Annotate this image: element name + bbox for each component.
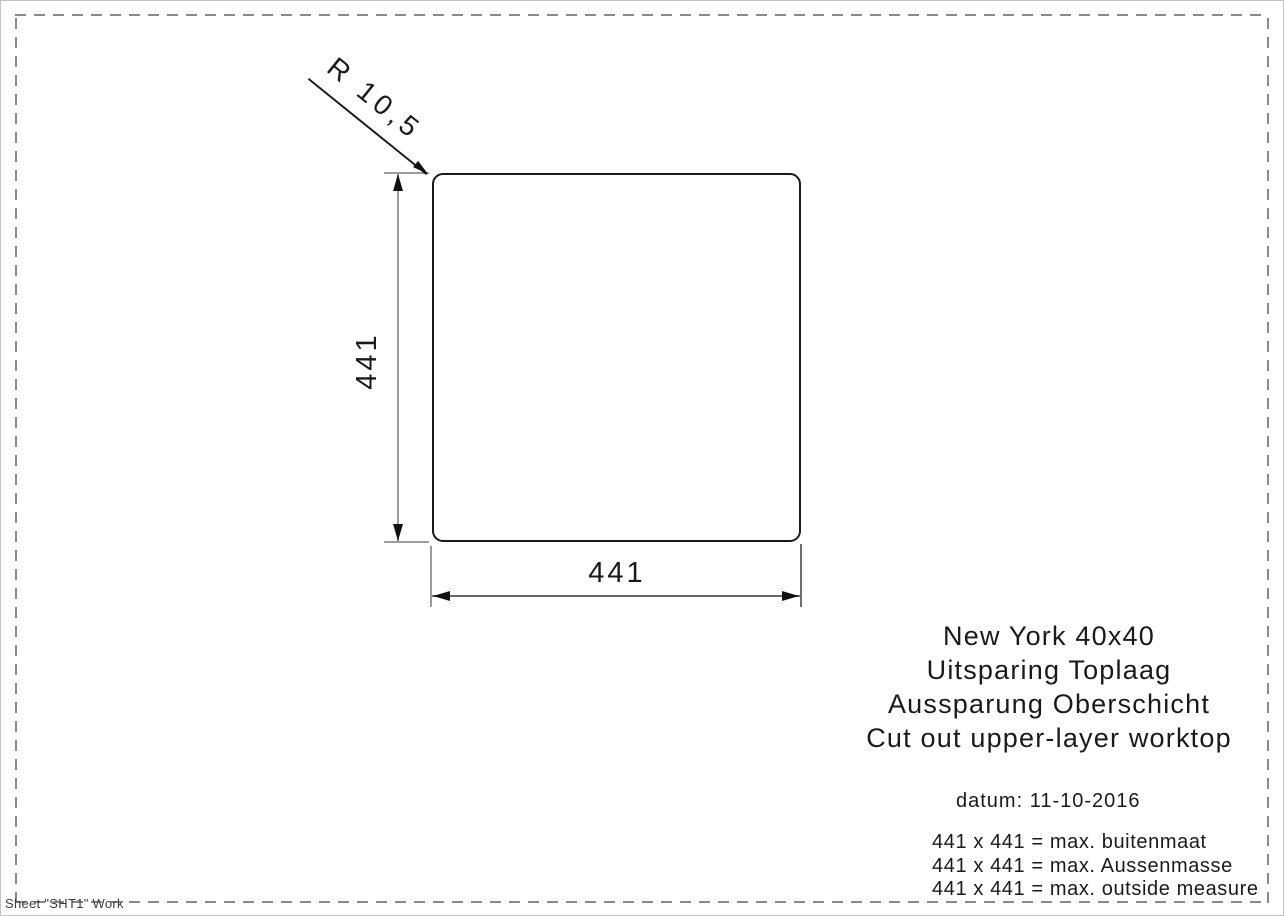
horizontal-dimension-line xyxy=(432,595,801,597)
dim-arrow-up-icon xyxy=(393,174,403,191)
sheet-border-top xyxy=(15,14,1269,16)
vertical-dimension-label: 441 xyxy=(352,315,382,407)
drawing-sheet: R 10,5 441 441 New York 40x40 Uitsparing… xyxy=(0,0,1284,916)
dim-arrow-down-icon xyxy=(393,524,403,541)
vertical-dimension-line xyxy=(397,174,399,541)
note-outside-measure: 441 x 441 = max. outside measure xyxy=(932,878,1259,902)
extension-line-left xyxy=(430,546,432,607)
horizontal-dimension-label: 441 xyxy=(540,557,694,590)
sheet-border-right xyxy=(1267,14,1269,903)
extension-line-bottom xyxy=(384,541,429,543)
subtitle-dutch: Uitsparing Toplaag xyxy=(825,653,1273,687)
sheet-border-left xyxy=(15,14,17,903)
subtitle-english: Cut out upper-layer worktop xyxy=(825,721,1273,755)
measurement-notes: 441 x 441 = max. buitenmaat 441 x 441 = … xyxy=(932,831,1259,902)
cutout-outline xyxy=(432,173,801,542)
title-block: New York 40x40 Uitsparing Toplaag Ausspa… xyxy=(825,619,1273,755)
sheet-tab-label: Sheet "SHT1" Work xyxy=(5,896,124,911)
extension-line-right xyxy=(800,544,802,607)
product-title: New York 40x40 xyxy=(825,619,1273,653)
date-label: datum: 11-10-2016 xyxy=(956,790,1141,813)
subtitle-german: Aussparung Oberschicht xyxy=(825,687,1273,721)
dim-arrow-right-icon xyxy=(782,591,799,601)
note-buitenmaat: 441 x 441 = max. buitenmaat xyxy=(932,831,1259,855)
leader-arrow-icon xyxy=(413,161,430,177)
note-aussenmasse: 441 x 441 = max. Aussenmasse xyxy=(932,855,1259,879)
radius-dimension-label: R 10,5 xyxy=(321,51,429,147)
dim-arrow-left-icon xyxy=(433,591,450,601)
radius-leader-line: R 10,5 xyxy=(308,78,427,175)
